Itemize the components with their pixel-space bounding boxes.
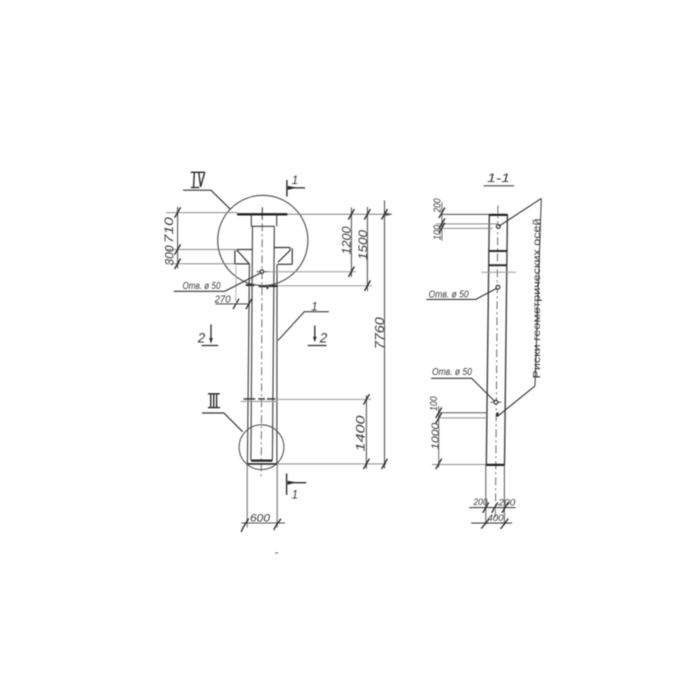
- svg-text:2: 2: [319, 330, 328, 345]
- svg-text:Отв. ø 50: Отв. ø 50: [183, 281, 221, 292]
- svg-text:1: 1: [292, 175, 298, 187]
- svg-text:1400: 1400: [353, 415, 367, 451]
- svg-text:600: 600: [250, 512, 271, 524]
- svg-text:200: 200: [497, 497, 516, 508]
- svg-text:2: 2: [197, 331, 206, 346]
- svg-text:1200: 1200: [340, 226, 354, 254]
- svg-text:1000: 1000: [430, 423, 442, 450]
- svg-text:400: 400: [488, 513, 505, 524]
- svg-text:1: 1: [292, 490, 298, 502]
- svg-text:300: 300: [163, 245, 177, 265]
- svg-text:100: 100: [432, 225, 443, 240]
- svg-text:1500: 1500: [356, 230, 370, 260]
- svg-text:200: 200: [432, 198, 443, 213]
- svg-text:7760: 7760: [373, 317, 387, 349]
- svg-text:270: 270: [214, 294, 231, 306]
- svg-text:Риски геометрических осей: Риски геометрических осей: [532, 219, 543, 379]
- svg-text:1-1: 1-1: [487, 173, 510, 185]
- svg-text:710: 710: [162, 217, 176, 243]
- svg-text:Отв. ø 50: Отв. ø 50: [432, 367, 472, 378]
- svg-text:100: 100: [429, 396, 440, 411]
- svg-text:200: 200: [473, 497, 489, 508]
